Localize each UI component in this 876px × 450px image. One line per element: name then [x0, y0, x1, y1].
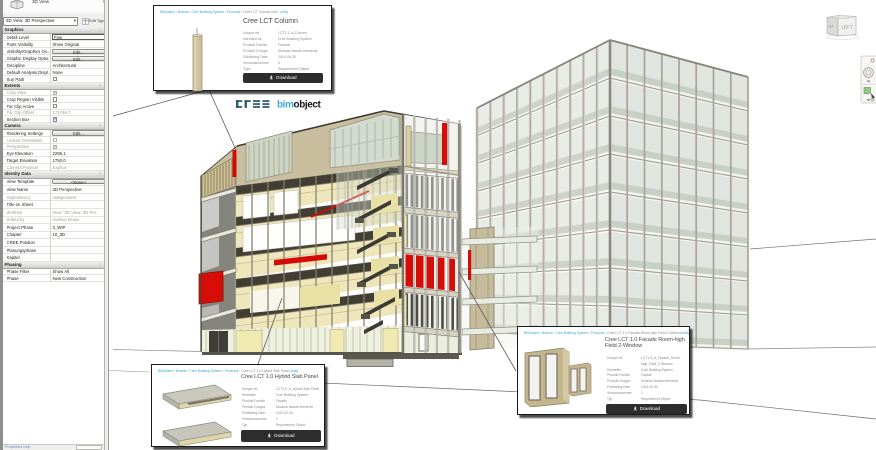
- svg-text:BA: BA: [829, 25, 834, 29]
- svg-text:LEFT: LEFT: [842, 25, 853, 30]
- svg-text:bimobject: bimobject: [277, 99, 322, 110]
